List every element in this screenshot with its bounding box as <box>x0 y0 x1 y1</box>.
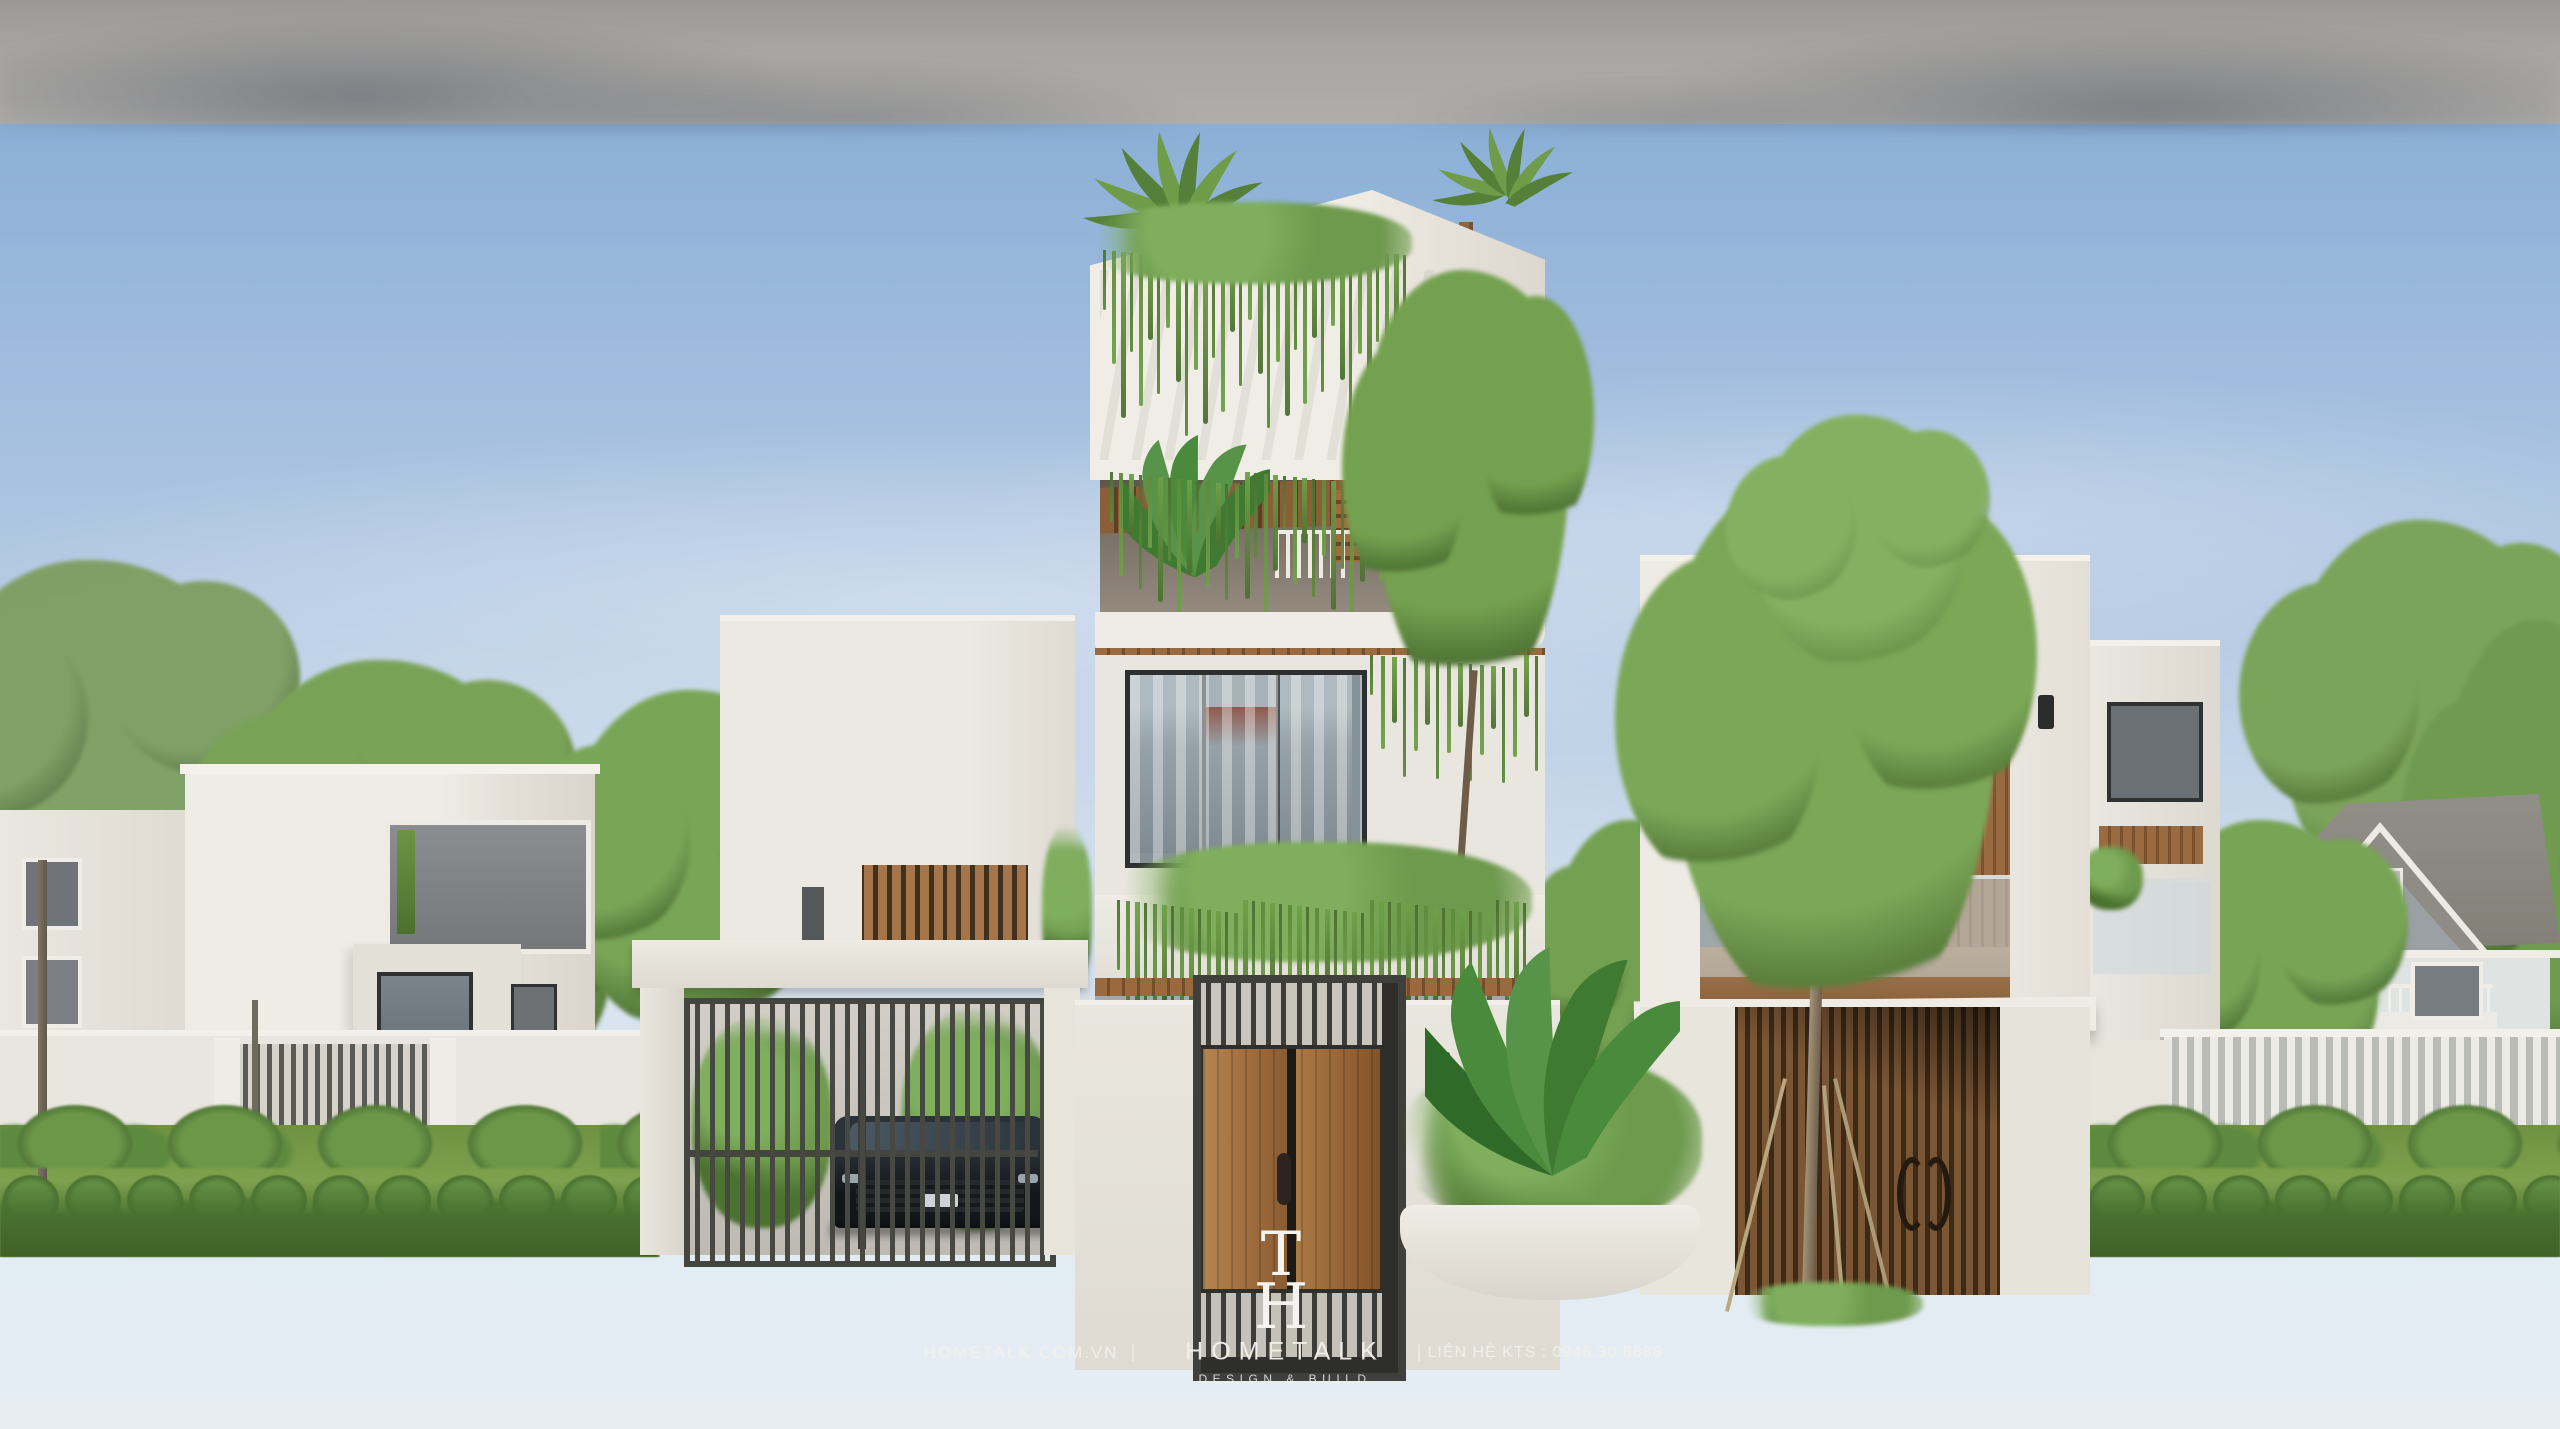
slat <box>860 1004 865 1261</box>
vine-strand <box>1370 655 1373 695</box>
rooftop-palm-right <box>1415 98 1595 243</box>
vine-strand <box>1361 913 1364 984</box>
slat <box>1297 983 1302 1045</box>
bush-row-right <box>2090 1092 2560 1168</box>
vine-strand <box>1225 484 1228 600</box>
upper-opening <box>385 820 591 954</box>
sliding-glass-doors <box>1125 670 1367 868</box>
vine-strand <box>1221 263 1225 412</box>
vine-strand <box>1245 472 1250 599</box>
vine-strand <box>1196 481 1199 533</box>
slat <box>740 1004 745 1261</box>
window <box>2107 702 2203 802</box>
slat <box>1236 983 1241 1045</box>
house-left-box <box>720 615 1075 958</box>
vine-strand <box>1293 477 1297 584</box>
vine-strand <box>1381 656 1385 749</box>
vine-strand <box>1535 656 1538 771</box>
vine-strand <box>1110 472 1113 522</box>
slat <box>830 1004 835 1261</box>
window <box>22 858 82 930</box>
fence-cap <box>2160 1029 2560 1037</box>
watermark-divider-left: | <box>1131 1342 1136 1363</box>
vine-strand <box>1235 485 1239 559</box>
slat <box>1025 1004 1030 1261</box>
window <box>22 956 82 1028</box>
gate-top-bars <box>1201 983 1382 1045</box>
stone-beam <box>632 940 1088 988</box>
door-handle <box>1277 1153 1291 1205</box>
hedge-left <box>0 1165 658 1257</box>
vine-strand <box>1148 476 1152 548</box>
slat <box>875 1004 880 1261</box>
vine-strand <box>1322 480 1326 556</box>
planter-banana-leaves <box>1425 935 1680 1200</box>
vine-strand <box>1121 252 1126 418</box>
vine-strand <box>1117 900 1120 970</box>
vine-strand <box>1273 475 1278 571</box>
slat <box>995 1004 1000 1261</box>
tree-base-grass <box>1738 1282 1923 1326</box>
vine-strand <box>1119 473 1123 576</box>
garage-pillar-right <box>2000 1007 2090 1295</box>
slat <box>920 1004 925 1261</box>
slat <box>1342 983 1347 1045</box>
slat <box>905 1004 910 1261</box>
slat <box>950 1004 955 1261</box>
slat <box>1372 983 1377 1045</box>
gate-bars <box>684 998 1056 1267</box>
slat <box>1010 1004 1015 1261</box>
vine-strand <box>1312 479 1315 597</box>
slat <box>1312 983 1317 1045</box>
vine-strand <box>1158 477 1163 602</box>
slat <box>965 1004 970 1261</box>
planter-strip <box>397 830 415 934</box>
watermark-contact-text: LIÊN HỆ KTS : 0946.30.8888 <box>1427 1344 1662 1362</box>
slat <box>1281 983 1286 1045</box>
slat <box>710 1004 715 1261</box>
watermark-tagline-text: DESIGN & BUILD <box>1198 1372 1371 1386</box>
slat <box>980 1004 985 1261</box>
hometalk-logo-monogram: T H <box>1237 1225 1325 1337</box>
slat <box>785 1004 790 1261</box>
slat <box>695 1004 700 1261</box>
slat <box>755 1004 760 1261</box>
vine-strand <box>1168 478 1171 561</box>
vine-strand <box>1203 261 1208 424</box>
slat <box>845 1004 850 1261</box>
watermark-divider-right: | <box>1417 1342 1422 1363</box>
architectural-render: HOMETALK.COM.VN | T H HOMETALK DESIGN & … <box>0 0 2560 1429</box>
curtain-sheen <box>1130 675 1362 863</box>
slat <box>1357 983 1362 1045</box>
vine-strand <box>1283 476 1286 530</box>
vine-strand <box>1129 474 1134 535</box>
logo-letter-h: H <box>1254 1270 1309 1337</box>
vine-strand <box>1177 479 1181 615</box>
vine-strand <box>1392 657 1397 723</box>
window <box>2411 962 2483 1020</box>
vine-strand <box>1254 473 1257 558</box>
vine-strand <box>1302 478 1307 543</box>
vine-strand <box>1264 474 1268 612</box>
slat <box>1221 983 1226 1045</box>
slat <box>935 1004 940 1261</box>
court-post-left <box>640 988 684 1255</box>
vine-strand <box>1331 481 1336 610</box>
wall-sconce <box>2038 695 2054 729</box>
garage-court <box>640 940 1080 1255</box>
slat <box>815 1004 820 1261</box>
slat <box>890 1004 895 1261</box>
vine-strand <box>1187 480 1192 574</box>
parapet <box>180 764 600 774</box>
vine-strand <box>1403 658 1406 777</box>
slat <box>770 1004 775 1261</box>
vine-strand <box>1414 659 1418 751</box>
vine-strand <box>1206 482 1210 587</box>
slat <box>725 1004 730 1261</box>
slat <box>800 1004 805 1261</box>
vine-strand <box>1139 475 1142 589</box>
rooftop-shrubs <box>1082 202 1412 284</box>
slat <box>1266 983 1271 1045</box>
vine-strand <box>1340 262 1345 380</box>
bush-row-left <box>0 1092 655 1168</box>
vine-strand <box>1216 483 1221 546</box>
slat <box>1206 983 1211 1045</box>
hedge-right <box>2086 1165 2560 1257</box>
garage-door <box>1735 1007 2000 1295</box>
slat <box>1251 983 1256 1045</box>
watermark-brand-text: HOMETALK <box>1185 1338 1385 1367</box>
slat <box>1327 983 1332 1045</box>
garage-top-shadow <box>1735 1007 2000 1295</box>
watermark-site-text: HOMETALK.COM.VN <box>924 1343 1119 1363</box>
garage-handle <box>1921 1157 1951 1231</box>
